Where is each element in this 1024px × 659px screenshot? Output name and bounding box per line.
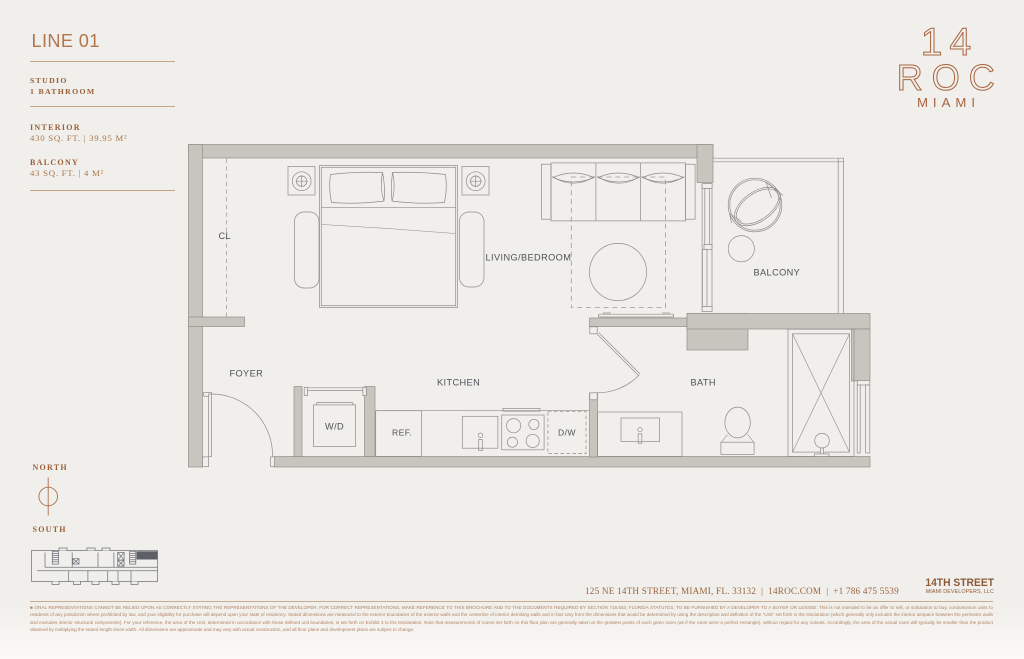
svg-text:FOYER: FOYER [230,369,264,379]
svg-text:KITCHEN: KITCHEN [437,378,480,388]
svg-text:BATH: BATH [691,378,716,388]
svg-text:BALCONY: BALCONY [754,268,801,278]
svg-text:CL: CL [219,231,232,241]
svg-text:W/D: W/D [325,422,344,432]
svg-text:LIVING/BEDROOM: LIVING/BEDROOM [486,253,572,263]
svg-text:REF.: REF. [392,428,412,438]
svg-text:D/W: D/W [558,428,576,438]
